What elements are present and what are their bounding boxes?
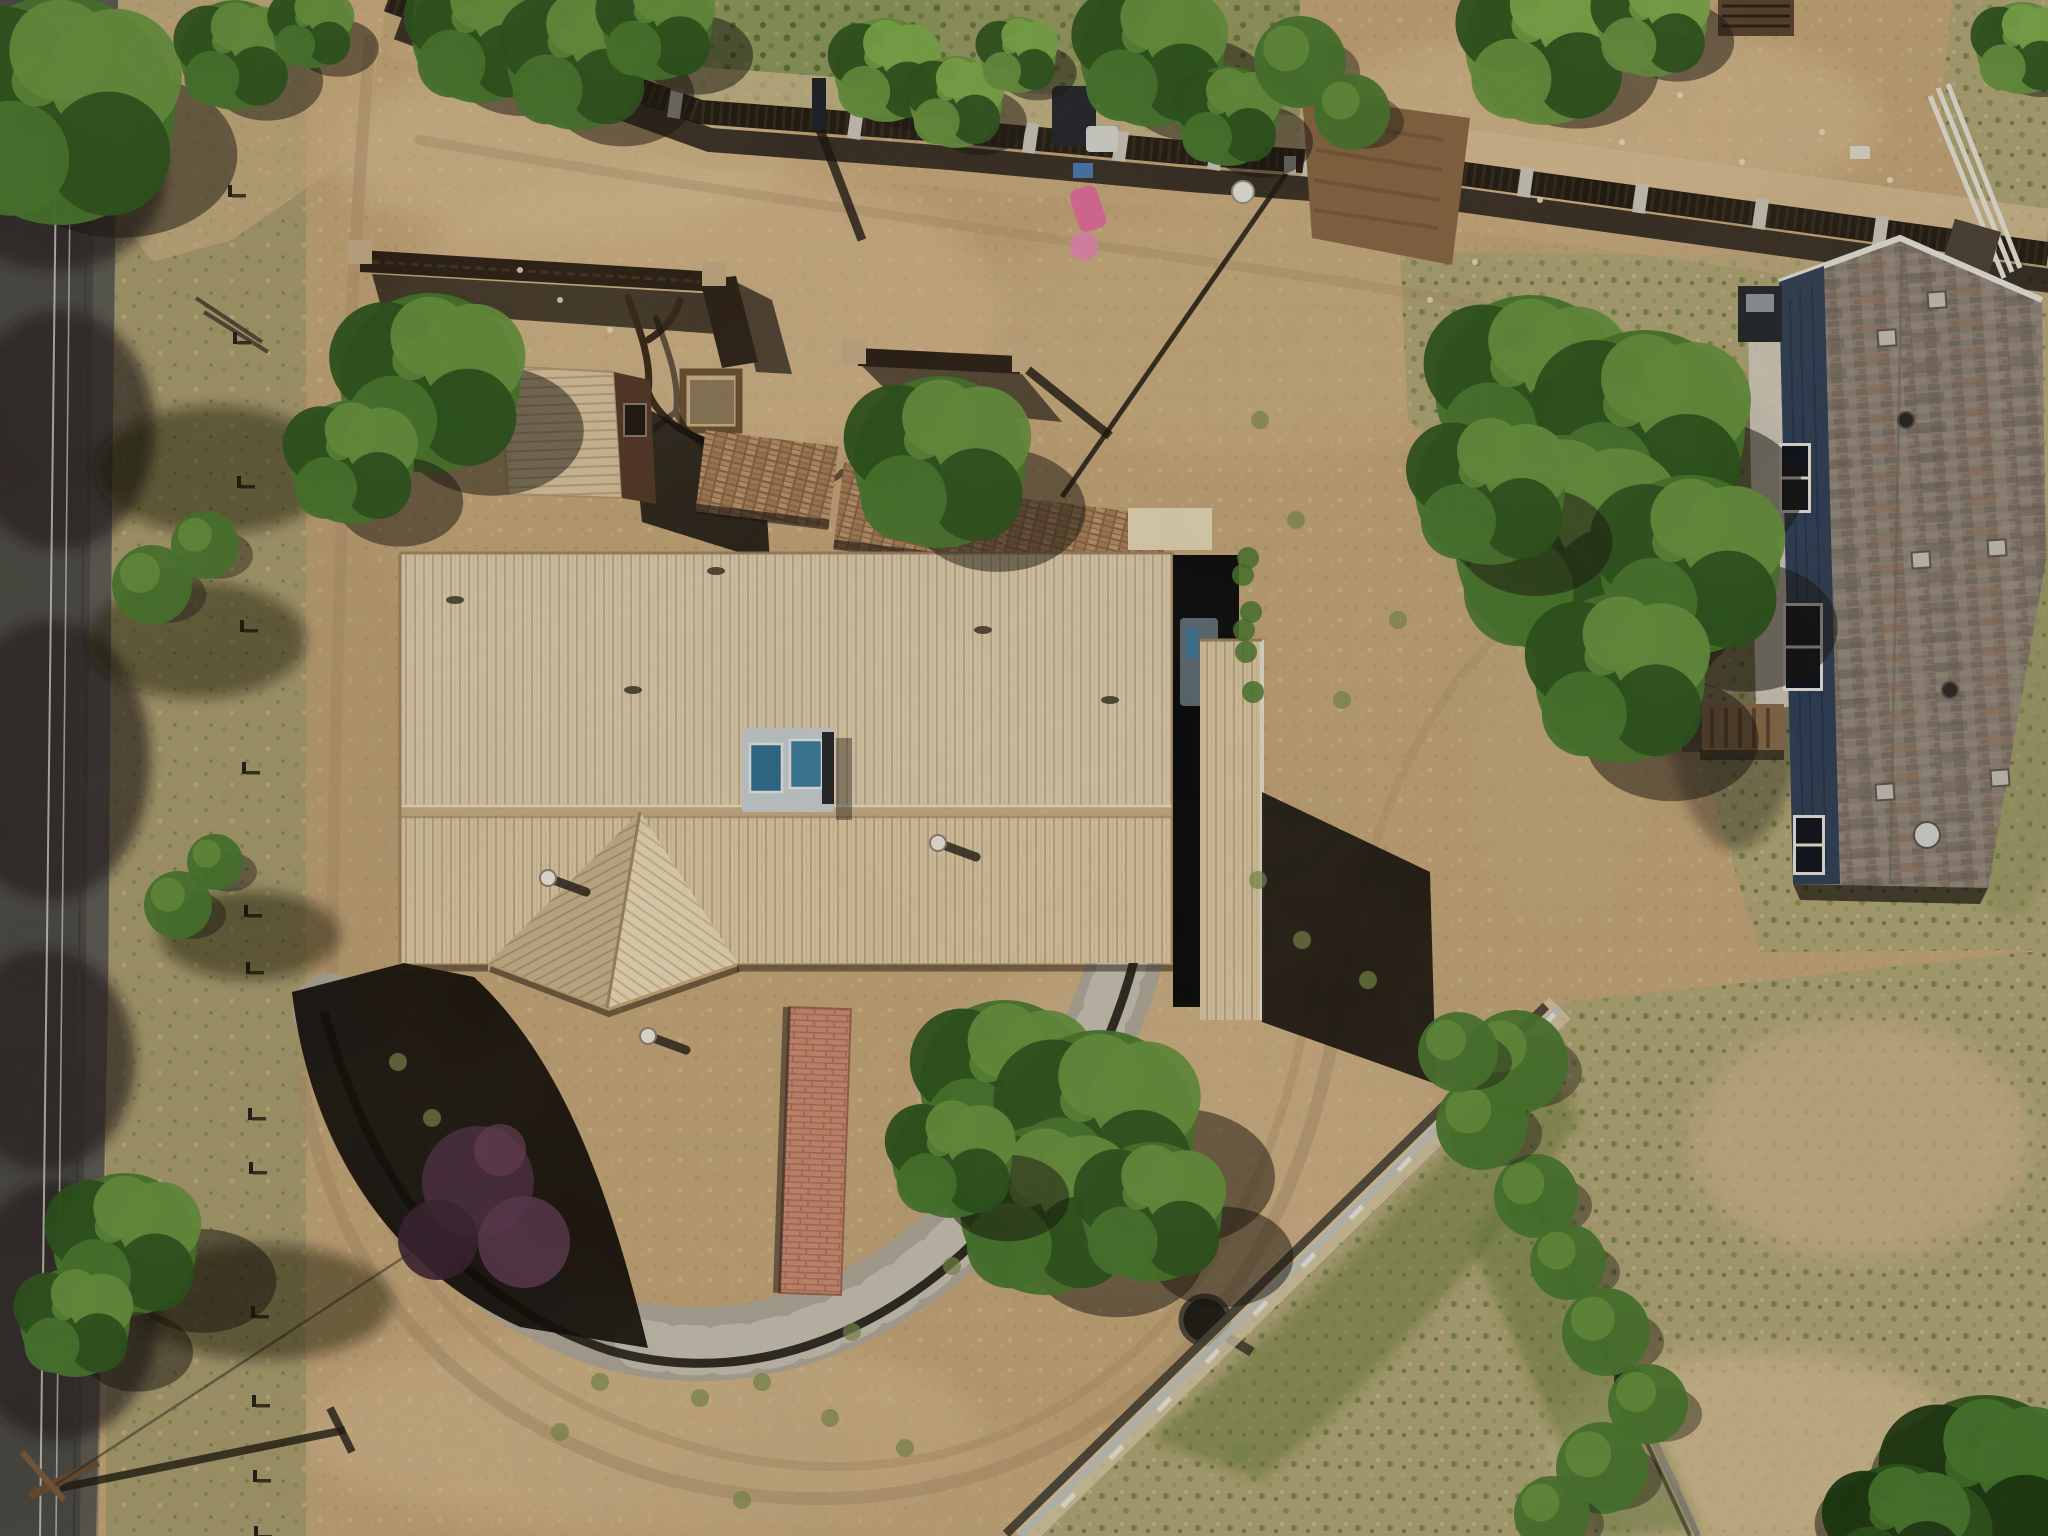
aerial-photo-canvas (0, 0, 2048, 1536)
film-grain (0, 0, 2048, 1536)
aerial-photo (0, 0, 2048, 1536)
